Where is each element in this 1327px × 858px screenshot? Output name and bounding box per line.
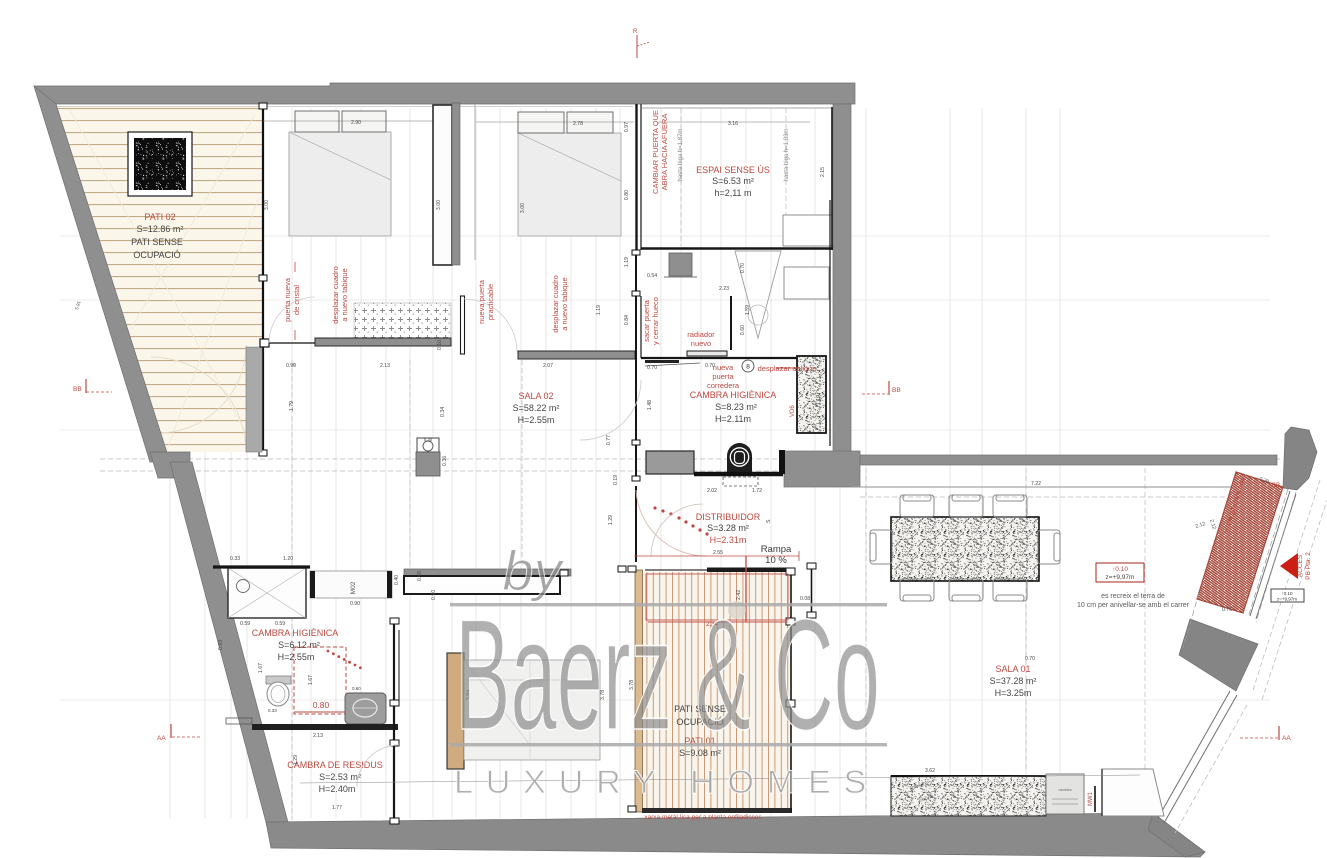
svg-text:ABRA HACIA AFUERA: ABRA HACIA AFUERA [660, 114, 669, 191]
svg-text:2.23: 2.23 [719, 286, 729, 292]
svg-text:desplazar cuadro: desplazar cuadro [331, 266, 340, 324]
svg-text:es recreix el terra de: es recreix el terra de [1101, 593, 1165, 600]
svg-text:CAMBRA HIGIÈNICA: CAMBRA HIGIÈNICA [690, 390, 777, 400]
svg-text:H=3.25m: H=3.25m [995, 688, 1032, 698]
svg-text:S=3.28 m²: S=3.28 m² [707, 523, 749, 533]
svg-text:3.62: 3.62 [925, 768, 935, 774]
svg-text:3.00: 3.00 [436, 200, 442, 210]
svg-text:a nuevo tabique: a nuevo tabique [560, 277, 569, 330]
svg-text:0.34: 0.34 [440, 407, 446, 417]
svg-text:3.00: 3.00 [520, 203, 526, 213]
svg-text:radiador: radiador [687, 330, 715, 339]
svg-text:S=37.28 m²: S=37.28 m² [990, 676, 1037, 686]
svg-text:↑0.10: ↑0.10 [1281, 591, 1293, 596]
svg-text:hasta biga h=1,87m: hasta biga h=1,87m [678, 129, 684, 182]
svg-text:OCUPACIÓ: OCUPACIÓ [133, 250, 180, 260]
svg-text:SALA 01: SALA 01 [995, 664, 1030, 674]
svg-text:0.93: 0.93 [218, 640, 224, 650]
svg-text:1.48: 1.48 [647, 400, 653, 410]
svg-text:H=2.11m: H=2.11m [715, 414, 751, 424]
svg-text:corredera: corredera [707, 381, 740, 390]
svg-text:0.33: 0.33 [230, 556, 240, 562]
svg-text:PATI 02: PATI 02 [144, 212, 175, 222]
svg-text:0.77: 0.77 [606, 435, 612, 445]
svg-text:2.13: 2.13 [313, 733, 323, 739]
svg-text:2.55: 2.55 [713, 550, 723, 556]
svg-text:a nuevo tabique: a nuevo tabique [340, 268, 349, 321]
svg-text:h=2,11 m: h=2,11 m [714, 188, 751, 198]
svg-text:z=+9,97m: z=+9,97m [1277, 597, 1297, 602]
svg-text:1.79: 1.79 [289, 401, 295, 411]
svg-text:ESPAI SENSE ÚS: ESPAI SENSE ÚS [696, 165, 770, 175]
svg-text:10 %: 10 % [765, 555, 787, 566]
svg-text:0.19: 0.19 [613, 475, 619, 485]
svg-text:2.78: 2.78 [573, 121, 583, 127]
svg-text:puerta nueva: puerta nueva [283, 277, 292, 322]
svg-text:practicable: practicable [486, 284, 495, 320]
svg-text:S=58.22 m²: S=58.22 m² [513, 403, 560, 413]
svg-text:0.80: 0.80 [624, 190, 630, 200]
svg-text:0.33: 0.33 [268, 708, 277, 713]
svg-text:↑0.10: ↑0.10 [1112, 566, 1128, 573]
svg-text:1.19: 1.19 [816, 395, 822, 405]
svg-text:xarxa metàl·lica per a planta: xarxa metàl·lica per a planta enfiladiss… [644, 814, 762, 821]
svg-text:0.90: 0.90 [350, 601, 360, 607]
svg-text:2.02: 2.02 [707, 488, 717, 494]
svg-text:PATI SENSE: PATI SENSE [131, 237, 183, 247]
svg-text:nueva puerta: nueva puerta [477, 279, 486, 324]
svg-text:puerta: puerta [712, 372, 734, 381]
svg-text:Baerz & Co: Baerz & Co [455, 587, 880, 763]
svg-text:2.90: 2.90 [351, 120, 361, 126]
svg-text:neveira: neveira [1058, 787, 1072, 792]
svg-text:LUXURY HOMES: LUXURY HOMES [454, 764, 879, 800]
svg-text:1.67: 1.67 [258, 663, 264, 673]
svg-text:desplazar aplique: desplazar aplique [758, 364, 817, 373]
svg-text:S=12.86 m²: S=12.86 m² [137, 224, 184, 234]
svg-text:1.67: 1.67 [308, 675, 314, 685]
svg-text:DISTRIBUIDOR: DISTRIBUIDOR [696, 512, 761, 522]
svg-text:VD6: VD6 [790, 405, 796, 417]
svg-text:nuevo: nuevo [691, 339, 711, 348]
svg-text:hasta biga h=1,83m: hasta biga h=1,83m [784, 129, 790, 182]
svg-text:H=2.40m: H=2.40m [319, 784, 356, 794]
svg-text:0.70: 0.70 [740, 263, 746, 273]
svg-text:0.70: 0.70 [647, 365, 657, 371]
svg-text:2.07: 2.07 [543, 363, 553, 369]
svg-text:1.77: 1.77 [332, 805, 342, 811]
svg-text:BB: BB [892, 387, 901, 394]
svg-text:0.30: 0.30 [424, 437, 433, 442]
svg-text:1.29: 1.29 [293, 755, 299, 765]
svg-text:0.60: 0.60 [417, 571, 423, 581]
svg-text:1.19: 1.19 [624, 257, 630, 267]
svg-text:0.70: 0.70 [1025, 656, 1035, 662]
svg-text:H=2.55m: H=2.55m [278, 652, 315, 662]
svg-text:PB Pta. 2: PB Pta. 2 [1305, 552, 1312, 580]
svg-text:0.80: 0.80 [313, 700, 330, 710]
svg-text:CAMBRA HIGIÈNICA: CAMBRA HIGIÈNICA [252, 628, 339, 638]
svg-text:H=2.55m: H=2.55m [518, 415, 555, 425]
svg-text:1.59: 1.59 [745, 305, 751, 315]
svg-text:1.20: 1.20 [283, 556, 293, 562]
svg-text:nueva: nueva [713, 363, 734, 372]
svg-text:AA: AA [1282, 735, 1291, 742]
svg-text:S=6.12 m²: S=6.12 m² [278, 640, 320, 650]
svg-text:MW1: MW1 [1088, 791, 1094, 806]
svg-text:0.76: 0.76 [1222, 607, 1232, 613]
svg-text:AA: AA [157, 735, 166, 742]
svg-text:10 cm per anivellar-se amb el: 10 cm per anivellar-se amb el carrer [1077, 602, 1190, 609]
svg-text:S=2.53 m²: S=2.53 m² [319, 772, 361, 782]
svg-text:7.22: 7.22 [1031, 481, 1041, 487]
svg-text:SALA 02: SALA 02 [518, 391, 553, 401]
svg-text:y cerrar hueco: y cerrar hueco [651, 297, 660, 345]
svg-text:0.60: 0.60 [740, 325, 746, 335]
svg-text:CAMBRA DE RESIDUS: CAMBRA DE RESIDUS [287, 760, 383, 770]
svg-text:0.90: 0.90 [431, 590, 437, 600]
svg-text:0.84: 0.84 [624, 315, 630, 325]
svg-text:ACCÉS: ACCÉS [1295, 554, 1304, 577]
svg-text:0.59: 0.59 [240, 621, 250, 627]
svg-text:3.16: 3.16 [728, 121, 738, 127]
svg-text:0.60: 0.60 [352, 686, 361, 691]
svg-text:S=8.23 m²: S=8.23 m² [715, 402, 757, 412]
svg-text:1.29: 1.29 [608, 515, 614, 525]
svg-text:S: S [766, 519, 772, 523]
svg-text:CAMBIAR PUERTA QUE: CAMBIAR PUERTA QUE [651, 110, 660, 194]
svg-text:0.54: 0.54 [647, 273, 657, 279]
svg-text:BB: BB [73, 386, 82, 393]
svg-text:1.72: 1.72 [752, 488, 762, 494]
svg-text:z=+9,97m: z=+9,97m [1106, 574, 1135, 581]
svg-text:M02: M02 [350, 581, 357, 594]
svg-text:BB: BB [1272, 483, 1280, 489]
svg-text:desplazar cuadro: desplazar cuadro [551, 275, 560, 333]
svg-text:8: 8 [746, 364, 750, 371]
svg-text:2.15: 2.15 [820, 167, 826, 177]
svg-text:1.19: 1.19 [596, 305, 602, 315]
svg-text:0.59: 0.59 [275, 621, 285, 627]
svg-text:de cristal: de cristal [292, 285, 301, 315]
svg-text:R: R [633, 29, 638, 35]
svg-text:3.00: 3.00 [264, 200, 270, 210]
svg-text:2.13: 2.13 [380, 363, 390, 369]
svg-text:H=2.31m: H=2.31m [710, 535, 747, 545]
svg-text:sacar puerta: sacar puerta [642, 299, 651, 342]
svg-text:0.90: 0.90 [286, 363, 296, 369]
svg-text:0.40: 0.40 [394, 575, 400, 585]
svg-text:0.36: 0.36 [442, 456, 448, 466]
svg-text:0.97: 0.97 [624, 122, 630, 132]
svg-text:S=6.53 m²: S=6.53 m² [712, 176, 754, 186]
svg-text:0.10: 0.10 [437, 340, 443, 350]
svg-text:Rampa: Rampa [761, 544, 792, 555]
